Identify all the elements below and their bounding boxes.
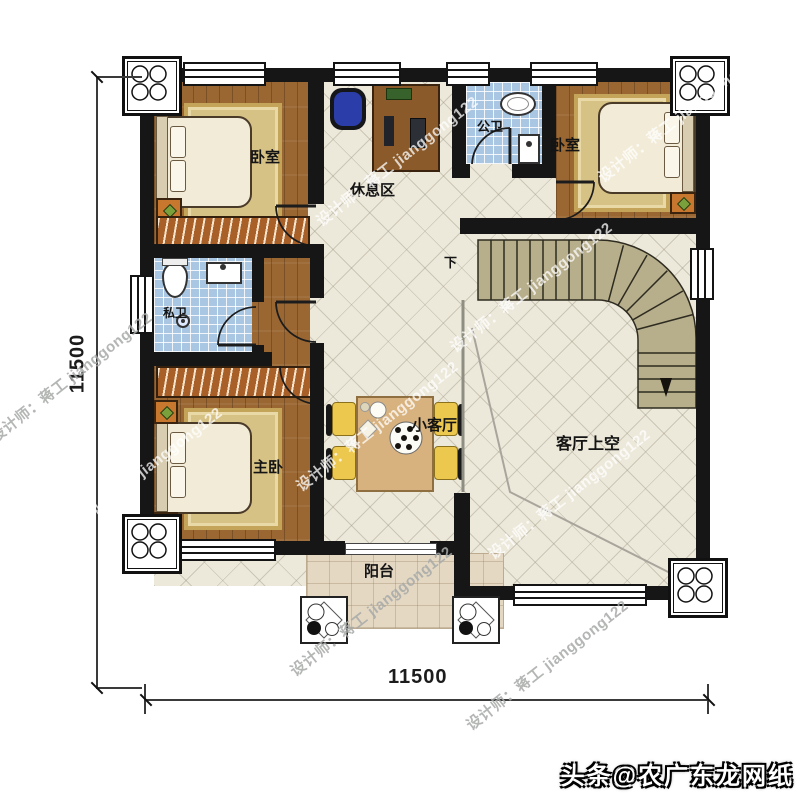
window (333, 62, 401, 86)
monitor-icon (384, 116, 394, 146)
window (130, 275, 154, 334)
room-label-bedroom-tl: 卧室 (250, 146, 280, 167)
nightstand (154, 400, 178, 424)
wall-segment (542, 82, 556, 178)
toilet-bowl (507, 97, 529, 111)
window (446, 62, 490, 86)
room-label-living-room-void: 客厅上空 (556, 430, 620, 454)
wardrobe (156, 216, 310, 246)
dimension-line-left (96, 78, 98, 688)
sink-icon (518, 134, 540, 164)
headboard (156, 422, 168, 512)
pillow (170, 432, 186, 464)
corner-pillar (668, 558, 728, 618)
window (173, 539, 276, 561)
chair (332, 446, 356, 480)
wall-segment (452, 82, 466, 164)
dimension-line-bottom (145, 699, 708, 701)
corner-pillar (122, 56, 182, 116)
room-label-bedroom-tr: 卧室 (550, 134, 580, 155)
wall-segment (140, 352, 272, 366)
dining-table (356, 396, 434, 492)
column-base (452, 596, 500, 644)
computer-tower-icon (410, 118, 426, 148)
headboard (156, 116, 168, 206)
extension-line (96, 687, 142, 689)
corner-pillar (122, 514, 182, 574)
pillow (170, 160, 186, 192)
wall-segment (310, 352, 324, 541)
chair (332, 402, 356, 436)
room-label-public-bathroom: 公卫 (477, 116, 503, 135)
window (183, 62, 266, 86)
chair-back (458, 404, 464, 436)
faucet-icon (220, 264, 226, 270)
wall-segment (454, 493, 470, 600)
wall-segment (310, 258, 324, 298)
wall-segment (140, 244, 324, 258)
wall-segment (452, 164, 470, 178)
office-chair-seat (334, 92, 362, 126)
nightstand (670, 192, 696, 214)
wall-segment (252, 258, 264, 302)
dimension-value-left: 11500 (66, 334, 89, 394)
caption-banner: 头条@农广东龙网纸 (561, 756, 794, 791)
wall-segment (308, 82, 324, 204)
wall-segment (460, 218, 710, 234)
window (690, 248, 714, 300)
extension-line (96, 76, 142, 78)
wall-segment (310, 343, 324, 352)
room-label-balcony: 阳台 (364, 560, 394, 581)
chair-back (458, 448, 464, 480)
room-label-private-bathroom: 私卫 (163, 304, 187, 321)
wall-segment (696, 68, 710, 600)
balcony-sliding-door (345, 543, 437, 555)
window (513, 584, 647, 606)
room-label-small-living-room: 小客厅 (412, 414, 457, 435)
toilet-tank (162, 258, 188, 266)
pillow (664, 112, 680, 144)
window (530, 62, 598, 86)
pillow (664, 146, 680, 178)
wall-segment (252, 345, 264, 352)
faucet-icon (526, 141, 532, 147)
wardrobe (156, 366, 324, 398)
column-base (300, 596, 348, 644)
room-label-master-bedroom: 主卧 (253, 456, 283, 477)
chair (434, 446, 458, 480)
pillow (170, 466, 186, 498)
room-label-rest-area: 休息区 (350, 179, 395, 200)
dimension-value-bottom: 11500 (388, 666, 448, 689)
desk-mat (386, 88, 412, 100)
corner-pillar (670, 56, 730, 116)
floor-plan-canvas: 卧室 卧室 主卧 私卫 公卫 休息区 小客厅 客厅上空 阳台 下 11500 1… (0, 0, 800, 800)
pillow (170, 126, 186, 158)
stairs-down-label: 下 (444, 252, 457, 271)
